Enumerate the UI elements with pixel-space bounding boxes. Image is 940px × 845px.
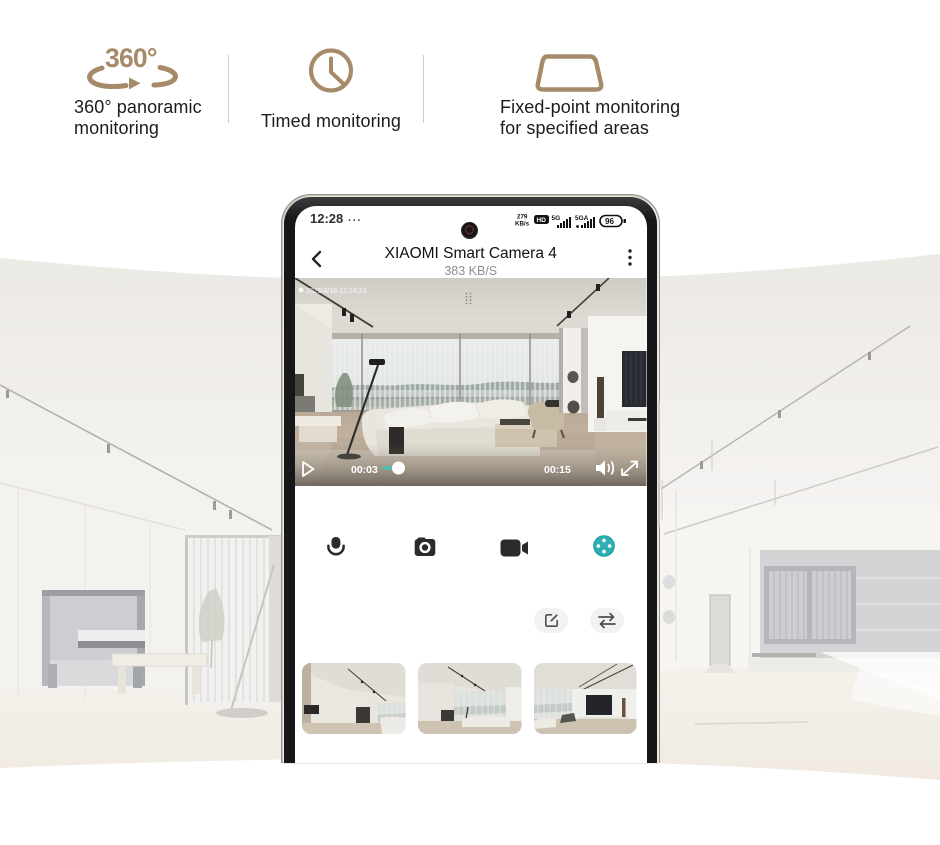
svg-text:96: 96	[605, 217, 614, 226]
svg-text:279: 279	[517, 214, 528, 221]
svg-text:00:15: 00:15	[544, 464, 571, 476]
svg-text:5GA: 5GA	[575, 215, 589, 222]
svg-text:360°: 360°	[105, 43, 157, 73]
svg-text:KB/s: KB/s	[515, 221, 530, 228]
svg-text:2025/4/18 12:24:23: 2025/4/18 12:24:23	[306, 288, 366, 295]
svg-text:00:03: 00:03	[351, 464, 378, 476]
svg-text:5G: 5G	[552, 215, 561, 222]
svg-text:HD: HD	[537, 217, 547, 224]
